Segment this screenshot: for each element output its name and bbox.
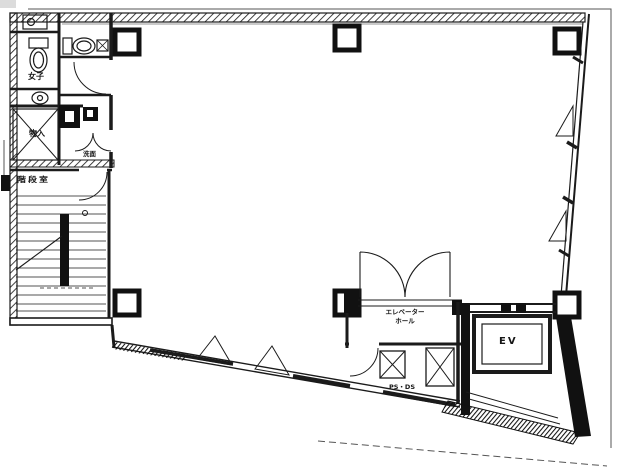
scan-noise xyxy=(0,0,16,8)
pipe-shaft-x xyxy=(380,351,405,378)
column xyxy=(115,291,139,315)
door-swing xyxy=(350,348,378,376)
hall-label-line1: エレベーター xyxy=(369,309,441,316)
door-handle-mark xyxy=(83,211,88,216)
elevator-label: EV xyxy=(499,337,529,347)
toilet-fixture xyxy=(29,38,48,72)
elevator-door-mark xyxy=(516,303,526,313)
elevator-block xyxy=(442,303,591,444)
elevator-door-mark xyxy=(501,303,511,313)
top-wall xyxy=(10,13,585,22)
column xyxy=(335,26,359,50)
floor-plan-drawing xyxy=(0,0,640,468)
column xyxy=(115,30,139,54)
floor-plan-page: EV 階段室 女子 物入 洗面 エレベーター ホール PS・DS xyxy=(0,0,640,468)
stairwell xyxy=(1,170,112,325)
toilet-fixture xyxy=(63,38,108,54)
column xyxy=(555,29,579,53)
toilet-block xyxy=(10,13,114,168)
stair-handrail xyxy=(60,214,69,286)
hall-label-line2: ホール xyxy=(369,318,441,325)
storage-label: 物入 xyxy=(29,130,45,138)
pipe-shaft-x xyxy=(426,348,454,386)
pipe-shaft-label: PS・DS xyxy=(370,384,434,391)
right-wall xyxy=(549,14,589,296)
wc-label: 女子 xyxy=(28,73,44,81)
site-boundary-line xyxy=(4,9,611,466)
door-swing xyxy=(75,133,93,151)
stairwell-label: 階段室 xyxy=(17,177,50,185)
door-swing xyxy=(93,133,111,151)
columns xyxy=(115,26,579,317)
elevator-bottom-wall xyxy=(442,401,580,444)
entrance-double-door xyxy=(344,252,462,315)
washbasin-fixture xyxy=(23,15,48,104)
bottom-wall xyxy=(112,325,460,407)
washroom-label: 洗面 xyxy=(83,151,96,158)
door-swing xyxy=(74,62,106,94)
eps-box xyxy=(1,175,10,191)
column xyxy=(555,293,579,317)
